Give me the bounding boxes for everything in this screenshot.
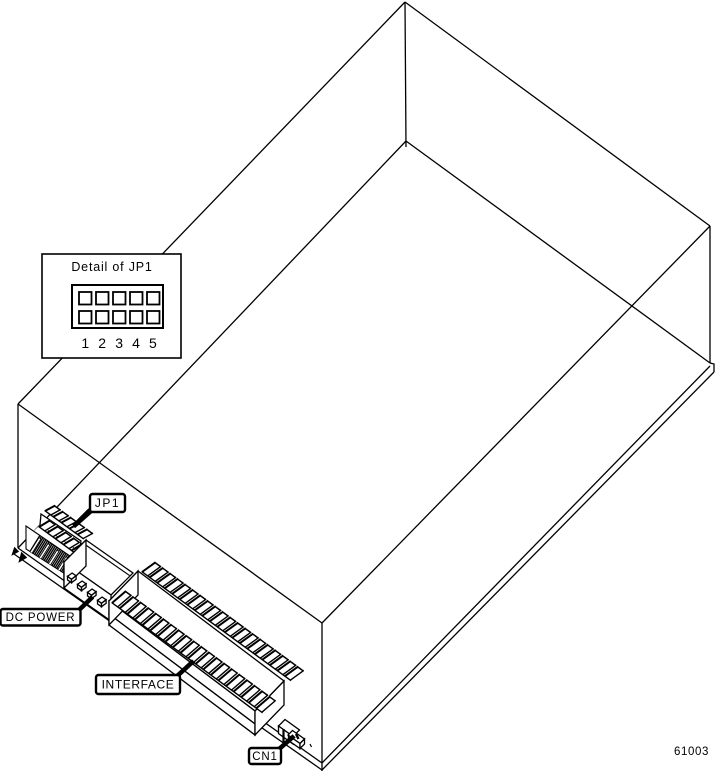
svg-text:INTERFACE: INTERFACE bbox=[102, 678, 175, 692]
svg-text:5: 5 bbox=[149, 335, 157, 351]
svg-text:Detail of JP1: Detail of JP1 bbox=[71, 260, 152, 274]
svg-text:4: 4 bbox=[132, 335, 140, 351]
svg-text:61003: 61003 bbox=[674, 746, 709, 758]
svg-text:2: 2 bbox=[98, 335, 106, 351]
svg-text:DC POWER: DC POWER bbox=[6, 612, 76, 624]
svg-text:1: 1 bbox=[81, 335, 89, 351]
svg-text:3: 3 bbox=[115, 335, 123, 351]
svg-text:JP1: JP1 bbox=[95, 496, 120, 510]
svg-text:CN1: CN1 bbox=[252, 751, 277, 763]
